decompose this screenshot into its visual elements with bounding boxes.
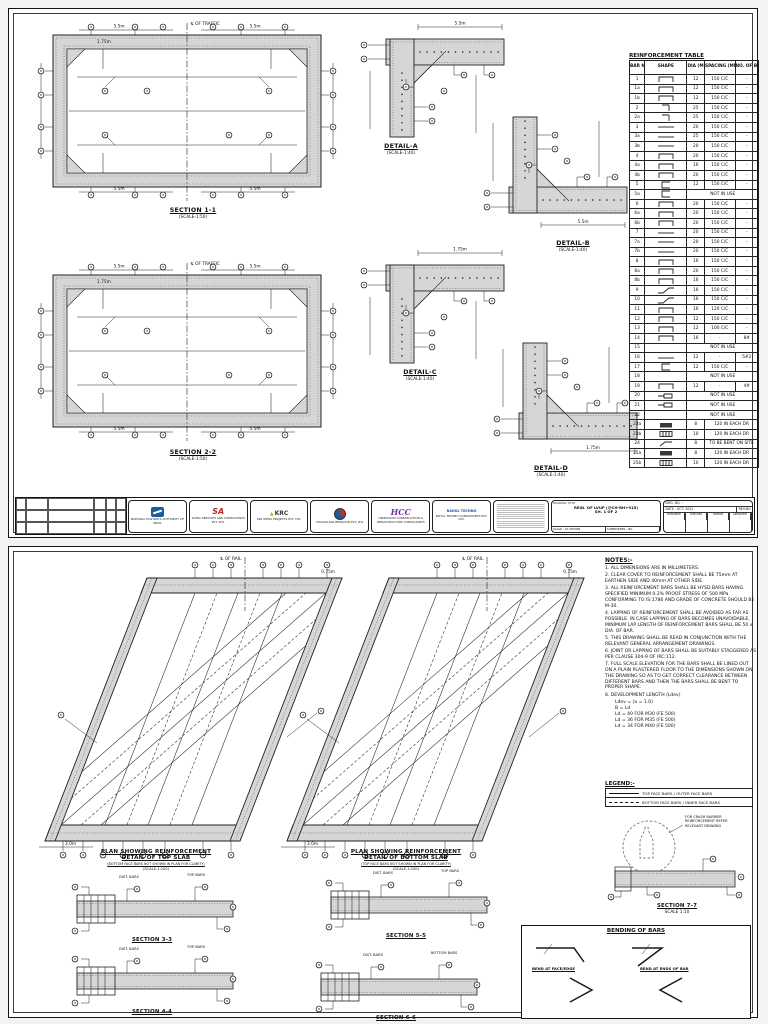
rebar-shape-glyph [645, 142, 687, 152]
rebar-dia: 12 [687, 382, 705, 392]
rebar-col-header: DIA (MM) [687, 61, 705, 75]
revision-grid [16, 498, 127, 534]
rebar-spacing: 150 C/C [705, 170, 735, 180]
rebar-table-body: 112150 C/C-1a12150 C/C-1b12150 C/C-22515… [630, 75, 759, 468]
section-1-1-caption: SECTION 1-1 (SCALE-1:50) [123, 207, 263, 220]
rebar-count: - [735, 209, 759, 219]
bar-label: BOTTOM BARS [431, 951, 457, 955]
rebar-no: 23b [630, 429, 645, 439]
bar-label: TOP BARS [441, 869, 459, 873]
drg-no-label: DRG. NO. : [664, 501, 684, 506]
rebar-row: 23a8120 IN EACH DR [630, 420, 759, 430]
rebar-dia: 20 [687, 266, 705, 276]
rebar-row: 6b20150 C/C- [630, 218, 759, 228]
rebar-spacing: 150 C/C [705, 295, 735, 305]
document-viewer: { "page1": { "s11": {"title": "SECTION 1… [0, 0, 768, 1024]
svg-text:3.0m: 3.0m [65, 841, 76, 847]
rebar-row: 1712150 C/C- [630, 362, 759, 372]
rebar-dia: 16 [687, 334, 705, 344]
rebar-count: - [735, 103, 759, 113]
rebar-spacing: 120 C/C [705, 305, 735, 315]
rebar-spacing: - [705, 334, 735, 344]
rebar-dia: 20 [687, 170, 705, 180]
rebar-spacing: - [705, 382, 735, 392]
detail-c-drawing: 1.75m [356, 243, 508, 367]
rebar-row: 18NOT IN USE [630, 372, 759, 382]
rebar-col-header: SPACING (MM) [705, 61, 735, 75]
bottom-slab-plan-drawing: ℄ OF RAIL 3.0m 0.75m [277, 553, 597, 865]
rebar-note: NOT IN USE [687, 190, 759, 200]
rebar-count: 4# [735, 382, 759, 392]
date-field: DATE : OCT. 2021 [664, 507, 736, 512]
section-title: SECTION 2-2 [123, 449, 263, 456]
rebar-dia: 12 [687, 362, 705, 372]
rebar-count: - [735, 75, 759, 85]
rebar-shape-glyph [645, 180, 687, 190]
rebar-note: NOT IN USE [687, 401, 759, 411]
solid-line-sample [609, 793, 639, 794]
rebar-dia: 12 [687, 353, 705, 363]
rebar-no: 13 [630, 324, 645, 334]
rebar-no: 10 [630, 295, 645, 305]
rebar-col-header: SHAPE [645, 61, 687, 75]
svg-text:5.5m: 5.5m [249, 24, 260, 30]
rebar-shape-glyph [645, 276, 687, 286]
bottom-slab-plan-caption: PLAN SHOWING REINFORCEMENT DETAIL OF BOT… [311, 849, 501, 871]
rebar-row: 816150 C/C- [630, 257, 759, 267]
detail-scale: (SCALE-1:40) [518, 248, 628, 253]
rebar-row: 320150 C/C- [630, 122, 759, 132]
rebar-row: 1212150 C/C- [630, 314, 759, 324]
rebar-row: 720150 C/C- [630, 228, 759, 238]
svg-text:1.75m: 1.75m [97, 39, 111, 45]
rebar-shape-glyph [645, 132, 687, 142]
rebar-spacing: 150 C/C [705, 75, 735, 85]
rebar-note: 120 IN EACH DR [705, 420, 759, 430]
svg-text:5.5m: 5.5m [249, 186, 260, 192]
nhai-logo-mark [151, 507, 164, 517]
note-item: 7. FULL SCALE ELEVATION FOR THE BARS SHA… [605, 662, 757, 691]
rebar-no: 19 [630, 382, 645, 392]
rebar-spacing: 150 C/C [705, 286, 735, 296]
rebar-dia: 12 [687, 314, 705, 324]
bar-label: DIST. BARS [119, 947, 139, 951]
rebar-no: 23a [630, 420, 645, 430]
rebar-shape-glyph [645, 266, 687, 276]
rebar-row: 4b20150 C/C- [630, 170, 759, 180]
rebar-dia: 10 [687, 458, 705, 468]
rebar-count: - [735, 84, 759, 94]
rebar-row: 225150 C/C- [630, 103, 759, 113]
rebar-row: 1612-5#2 [630, 353, 759, 363]
rebar-row: 1116120 C/C- [630, 305, 759, 315]
svg-text:5.5m: 5.5m [113, 426, 124, 432]
rebar-spacing: 100 C/C [705, 324, 735, 334]
sheet-2: ℄ OF RAIL 3.0m 0.75m PLAN SHOWING REINFO… [8, 546, 758, 1018]
scale-note: SCALE : AS SHOWN [552, 527, 606, 532]
rebar-no: 7a [630, 238, 645, 248]
rebar-no: 9 [630, 286, 645, 296]
partner-logo: KRCKRC INFRA PROJECTS PVT. LTD. [250, 500, 309, 533]
rebar-dia: 10 [687, 429, 705, 439]
rebar-no: 12 [630, 314, 645, 324]
rebar-count: - [735, 324, 759, 334]
section-5-5-drawing [321, 873, 491, 935]
bar-label: DIST. BARS [363, 953, 383, 957]
rebar-dia: 8 [687, 449, 705, 459]
top-slab-plan-caption: PLAN SHOWING REINFORCEMENT DETAIL OF TOP… [61, 849, 251, 871]
rebar-spacing: 150 C/C [705, 276, 735, 286]
section-title: SECTION 4-4 [97, 1009, 207, 1015]
note-item: 5. THIS DRAWING SHALL BE READ IN CONJUNC… [605, 636, 757, 648]
rebar-dia: 20 [687, 209, 705, 219]
legend-entry: TOP FACE BARS / OUTER FACE BARS [606, 789, 752, 798]
rebar-spacing: 150 C/C [705, 257, 735, 267]
rebar-no: 17 [630, 362, 645, 372]
rebar-shape-glyph [645, 410, 687, 420]
rebar-shape-glyph [645, 305, 687, 315]
rebar-spacing: 150 C/C [705, 238, 735, 248]
rebar-no: 6b [630, 218, 645, 228]
note-item: 6. JOINT OR LAPPING OF BARS SHALL BE SUI… [605, 649, 757, 661]
bar-label: DIST. BARS [373, 871, 393, 875]
rebar-no: 24 [630, 439, 645, 449]
rebar-spacing: 150 C/C [705, 122, 735, 132]
rebar-spacing: 150 C/C [705, 151, 735, 161]
rebar-shape-glyph [645, 429, 687, 439]
rebar-shape-glyph [645, 391, 687, 401]
rebar-count: - [735, 266, 759, 276]
rebar-row: 512150 C/C- [630, 180, 759, 190]
rebar-shape-glyph [645, 209, 687, 219]
rebar-spacing: 150 C/C [705, 266, 735, 276]
rebar-dia: 16 [687, 286, 705, 296]
bend-caption-1: BEND AT FACE/EDGE [532, 966, 575, 971]
section-scale: (SCALE-1:50) [123, 215, 263, 220]
rebar-dia: 12 [687, 84, 705, 94]
rebar-count: - [735, 170, 759, 180]
svg-text:5.5m: 5.5m [249, 426, 260, 432]
svg-text:5.5m: 5.5m [113, 264, 124, 270]
rebar-spacing: - [705, 353, 735, 363]
rebar-no: 20 [630, 391, 645, 401]
rebar-dia: 16 [687, 161, 705, 171]
detail-d-caption: DETAIL-D (SCALE-1:40) [496, 465, 606, 478]
rebar-dia: 25 [687, 103, 705, 113]
section-7-7-block: FOR CRASH BARRIER REINFORCEMENT REFER RE… [607, 815, 757, 923]
svg-text:1.75m: 1.75m [97, 279, 111, 285]
plan-subtitle: (TOP FACE BARS NOT SHOWN IN PLAN FOR CLA… [311, 862, 501, 866]
partner-logo-caption: SATRA SERVICES AND CONSULTANTS PVT. LTD. [191, 517, 246, 523]
rebar-row: 3b20150 C/C- [630, 142, 759, 152]
rebar-shape-glyph [645, 84, 687, 94]
svg-text:3.0m: 3.0m [307, 841, 318, 847]
signature-cell: APPROVED- [730, 513, 752, 532]
detail-b-caption: DETAIL-B (SCALE-1:40) [518, 240, 628, 253]
rebar-no: 3a [630, 132, 645, 142]
signature-cell: CHECKED- [686, 513, 708, 532]
detail-scale: (SCALE-1:40) [365, 377, 475, 382]
section-3-3-block: DIST. BARS TOP BARS SECTION 3-3 [67, 877, 247, 943]
disclaimer-box [493, 500, 549, 533]
rebar-row: 8b16150 C/C- [630, 276, 759, 286]
rebar-no: 5a [630, 190, 645, 200]
rebar-dia: 25 [687, 132, 705, 142]
rebar-shape-glyph [645, 228, 687, 238]
legend-entry-label: BOTTOM FACE BARS / INNER FACE BARS [642, 800, 720, 805]
rebar-table-header: BAR NO.SHAPEDIA (MM)SPACING (MM)NO. OF B… [630, 61, 759, 75]
rebar-shape-glyph [645, 199, 687, 209]
rebar-spacing: 150 C/C [705, 228, 735, 238]
section-4-4-drawing [67, 949, 237, 1011]
rebar-shape-glyph [645, 334, 687, 344]
rebar-count: - [735, 122, 759, 132]
rebar-shape-glyph [645, 295, 687, 305]
detail-title: DETAIL-C [365, 369, 475, 376]
section-title: SECTION 1-1 [123, 207, 263, 214]
rebar-count: - [735, 362, 759, 372]
rebar-note: NOT IN USE [687, 343, 759, 353]
notes-panel: NOTES:- 1. ALL DIMENSIONS ARE IN MILLIME… [605, 557, 757, 730]
note-item: 4. LAPPING OF REINFORCEMENT SHALL BE AVO… [605, 611, 757, 634]
sheet-1: ℄ OF TRAFFIC 5.5m 5.5m 1.75m 5.5m 5.5m S… [8, 8, 758, 538]
rebar-count: - [735, 238, 759, 248]
drg-number-box: DRG. NO. : DATE : OCT. 2021 REV.NO DESIG… [663, 500, 753, 533]
detail-b-drawing: 5.5m [479, 113, 631, 237]
rebar-row: 5aNOT IN USE [630, 190, 759, 200]
sheet-number: SH. 1 OF 2 [552, 510, 660, 515]
svg-text:5.5m: 5.5m [577, 219, 588, 225]
rebar-shape-glyph [645, 420, 687, 430]
svg-text:0.75m: 0.75m [563, 569, 577, 575]
plan-title-line2: DETAIL OF BOTTOM SLAB [311, 855, 501, 861]
rebar-count: - [735, 132, 759, 142]
rebar-spacing: 150 C/C [705, 103, 735, 113]
section-title: SECTION 5-5 [351, 933, 461, 939]
svg-text:5.5m: 5.5m [113, 186, 124, 192]
rebar-shape-glyph [645, 94, 687, 104]
rebar-shape-glyph [645, 257, 687, 267]
detail-d-drawing: 1.75m [489, 339, 641, 463]
rebar-shape-glyph [645, 324, 687, 334]
rebar-shape-glyph [645, 286, 687, 296]
rebar-row: 4a16150 C/C- [630, 161, 759, 171]
title-block: NATIONAL HIGHWAYS AUTHORITY OF INDIASASA… [15, 497, 755, 535]
reinforcement-table-title: REINFORCEMENT TABLE [629, 53, 759, 59]
rebar-shape-glyph [645, 372, 687, 382]
rebar-spacing: 150 C/C [705, 84, 735, 94]
rebar-note: TO BE BENT ON SITE [705, 439, 759, 449]
rebar-row: 916150 C/C- [630, 286, 759, 296]
bar-label: TOP BARS [187, 945, 205, 949]
rebar-shape-glyph [645, 170, 687, 180]
notes-title: NOTES:- [605, 557, 757, 564]
rebar-spacing: 150 C/C [705, 94, 735, 104]
rebar-spacing: 150 C/C [705, 113, 735, 123]
rebar-spacing: 150 C/C [705, 314, 735, 324]
rebar-dia: 20 [687, 247, 705, 257]
section-4-4-block: DIST. BARS TOP BARS SECTION 4-4 [67, 949, 247, 1015]
rebar-shape-glyph [645, 353, 687, 363]
rebar-dia: 20 [687, 151, 705, 161]
rebar-no: 1b [630, 94, 645, 104]
rebar-spacing: 150 C/C [705, 362, 735, 372]
rebar-row: 1016150 C/C- [630, 295, 759, 305]
rebar-spacing: 150 C/C [705, 161, 735, 171]
rebar-note: 120 IN EACH DR [705, 449, 759, 459]
rebar-shape-glyph [645, 362, 687, 372]
rebar-count: - [735, 295, 759, 305]
rebar-no: 4 [630, 151, 645, 161]
section-1-1-drawing: ℄ OF TRAFFIC 5.5m 5.5m 1.75m 5.5m 5.5m [33, 19, 343, 207]
rebar-spacing: 150 C/C [705, 142, 735, 152]
partner-logo: NATIONAL HIGHWAYS AUTHORITY OF INDIA [128, 500, 187, 533]
sa-logo-mark: SA [212, 508, 224, 516]
rebar-count: - [735, 257, 759, 267]
reinforcement-table: REINFORCEMENT TABLE BAR NO.SHAPEDIA (MM)… [629, 53, 759, 468]
rebar-row: 420150 C/C- [630, 151, 759, 161]
svg-text:1.75m: 1.75m [453, 247, 467, 253]
rebar-spacing: 150 C/C [705, 180, 735, 190]
rebar-shape-glyph [645, 401, 687, 411]
rebar-no: 1a [630, 84, 645, 94]
bending-of-bars-box: BENDING OF BARS BEND AT FACE/EDGE BEND A… [521, 925, 751, 1019]
rebar-spacing: 150 C/C [705, 132, 735, 142]
signature-cell: DESIGNED- [664, 513, 686, 532]
rebar-dia: 16 [687, 276, 705, 286]
rebar-no: 6a [630, 209, 645, 219]
rebar-no: 4b [630, 170, 645, 180]
rebar-no: 16 [630, 353, 645, 363]
rebar-no: 25a [630, 449, 645, 459]
rebar-shape-glyph [645, 190, 687, 200]
rebar-count: - [735, 94, 759, 104]
section-6-6-block: DIST. BARS BOTTOM BARS SECTION 6-6 [311, 955, 491, 1021]
partner-logo: SASATRA SERVICES AND CONSULTANTS PVT. LT… [189, 500, 248, 533]
rebar-count: - [735, 199, 759, 209]
legend-box: TOP FACE BARS / OUTER FACE BARSBOTTOM FA… [605, 788, 753, 807]
rebar-dia: 12 [687, 75, 705, 85]
legend-panel: LEGEND:- TOP FACE BARS / OUTER FACE BARS… [605, 781, 753, 807]
rebar-count: 8# [735, 334, 759, 344]
legend-entry: BOTTOM FACE BARS / INNER FACE BARS [606, 798, 752, 806]
partner-logo-caption: HINDUSTAN CONSTRUCTION & INFRASTRUCTURE … [373, 517, 428, 523]
centerline-label: ℄ OF TRAFFIC [191, 21, 220, 27]
partner-logo-caption: CHAVAN RAILINFRACON PVT. LTD. [316, 521, 364, 524]
rebar-shape-glyph [645, 161, 687, 171]
rebar-row: 20NOT IN USE [630, 391, 759, 401]
rebar-row: 2a25150 C/C- [630, 113, 759, 123]
rebar-dia: 20 [687, 122, 705, 132]
note-item: 3. ALL REINFORCEMENT BARS SHALL BE HYSD … [605, 586, 757, 609]
detail-title: DETAIL-A [346, 143, 456, 150]
rebar-row: 15NOT IN USE [630, 343, 759, 353]
logo-strip: NATIONAL HIGHWAYS AUTHORITY OF INDIASASA… [127, 498, 492, 534]
note-item: 8. DEVELOPMENT LENGTH (Ldev) [605, 693, 757, 699]
rebar-row: 620150 C/C- [630, 199, 759, 209]
rebar-row: 112150 C/C- [630, 75, 759, 85]
rebar-shape-glyph [645, 449, 687, 459]
rebar-dia: 8 [687, 439, 705, 449]
rebar-dia: 20 [687, 142, 705, 152]
rebar-no: 2 [630, 103, 645, 113]
partner-logo-caption: RAHUL TECHNO CONSULTANTS PVT. LTD. [434, 515, 489, 521]
rebar-no: 3b [630, 142, 645, 152]
plan-title-line2: DETAIL OF TOP SLAB [61, 855, 251, 861]
rebar-dia: 16 [687, 305, 705, 315]
rebar-count: - [735, 247, 759, 257]
rebar-no: 4a [630, 161, 645, 171]
rebar-no: 18 [630, 372, 645, 382]
rebar-shape-glyph [645, 113, 687, 123]
rebar-row: 25b10120 IN EACH DR [630, 458, 759, 468]
rebar-no: 15 [630, 343, 645, 353]
rebar-note: NOT IN USE [687, 372, 759, 382]
section-scale: (SCALE-1:50) [123, 457, 263, 462]
rebar-no: 8 [630, 257, 645, 267]
rebar-dia: 20 [687, 199, 705, 209]
hcc-logo-mark: HCC [391, 508, 411, 516]
rebar-shape-glyph [645, 151, 687, 161]
crash-barrier-note: FOR CRASH BARRIER REINFORCEMENT REFER RE… [685, 815, 727, 828]
plan-subtitle: (BOTTOM FACE BARS NOT SHOWN IN PLAN FOR … [61, 862, 251, 866]
rebar-no: 2a [630, 113, 645, 123]
krc-logo-mark: KRC [270, 511, 289, 517]
partner-logo: CHAVAN RAILINFRACON PVT. LTD. [310, 500, 369, 533]
rebar-row: 1912-4# [630, 382, 759, 392]
rebar-shape-glyph [645, 75, 687, 85]
rebar-row: 1b12150 C/C- [630, 94, 759, 104]
rebar-note: NOT IN USE [687, 410, 759, 420]
rebar-spacing: 150 C/C [705, 209, 735, 219]
svg-text:5.5m: 5.5m [113, 24, 124, 30]
rebar-row: 22NOT IN USE [630, 410, 759, 420]
rebar-dia: 16 [687, 257, 705, 267]
detail-title: DETAIL-D [496, 465, 606, 472]
rebar-no: 1 [630, 75, 645, 85]
centerline-label: ℄ OF RAIL [221, 556, 242, 562]
rebar-no: 7b [630, 247, 645, 257]
rebar-spacing: 150 C/C [705, 199, 735, 209]
rebar-dia: 12 [687, 180, 705, 190]
rebar-count: - [735, 151, 759, 161]
rebar-shape-glyph [645, 439, 687, 449]
rebar-count: - [735, 161, 759, 171]
section-6-6-drawing [311, 955, 481, 1017]
rebar-row: 23b10120 IN EACH DR [630, 429, 759, 439]
partner-logo: RAHUL TECHNORAHUL TECHNO CONSULTANTS PVT… [432, 500, 491, 533]
rebar-no: 25b [630, 458, 645, 468]
section-title: SECTION 6-6 [341, 1015, 451, 1021]
rebar-no: 21 [630, 401, 645, 411]
rebar-count: - [735, 305, 759, 315]
section-5-5-block: DIST. BARS TOP BARS SECTION 5-5 [321, 873, 501, 939]
rebar-shape-glyph [645, 458, 687, 468]
rebar-row: 1a12150 C/C- [630, 84, 759, 94]
rebar-dia: 8 [687, 420, 705, 430]
rebar-shape-glyph [645, 122, 687, 132]
bar-label: DIST. BARS [119, 875, 139, 879]
rebar-row: 25a8120 IN EACH DR [630, 449, 759, 459]
rebar-row: 248TO BE BENT ON SITE [630, 439, 759, 449]
rebar-spacing: 150 C/C [705, 247, 735, 257]
rebar-count: 5#2 [735, 353, 759, 363]
detail-title: DETAIL-B [518, 240, 628, 247]
rebar-dia: 20 [687, 218, 705, 228]
rebar-no: 22 [630, 410, 645, 420]
svg-text:5.5m: 5.5m [454, 21, 465, 27]
rebar-row: 21NOT IN USE [630, 401, 759, 411]
